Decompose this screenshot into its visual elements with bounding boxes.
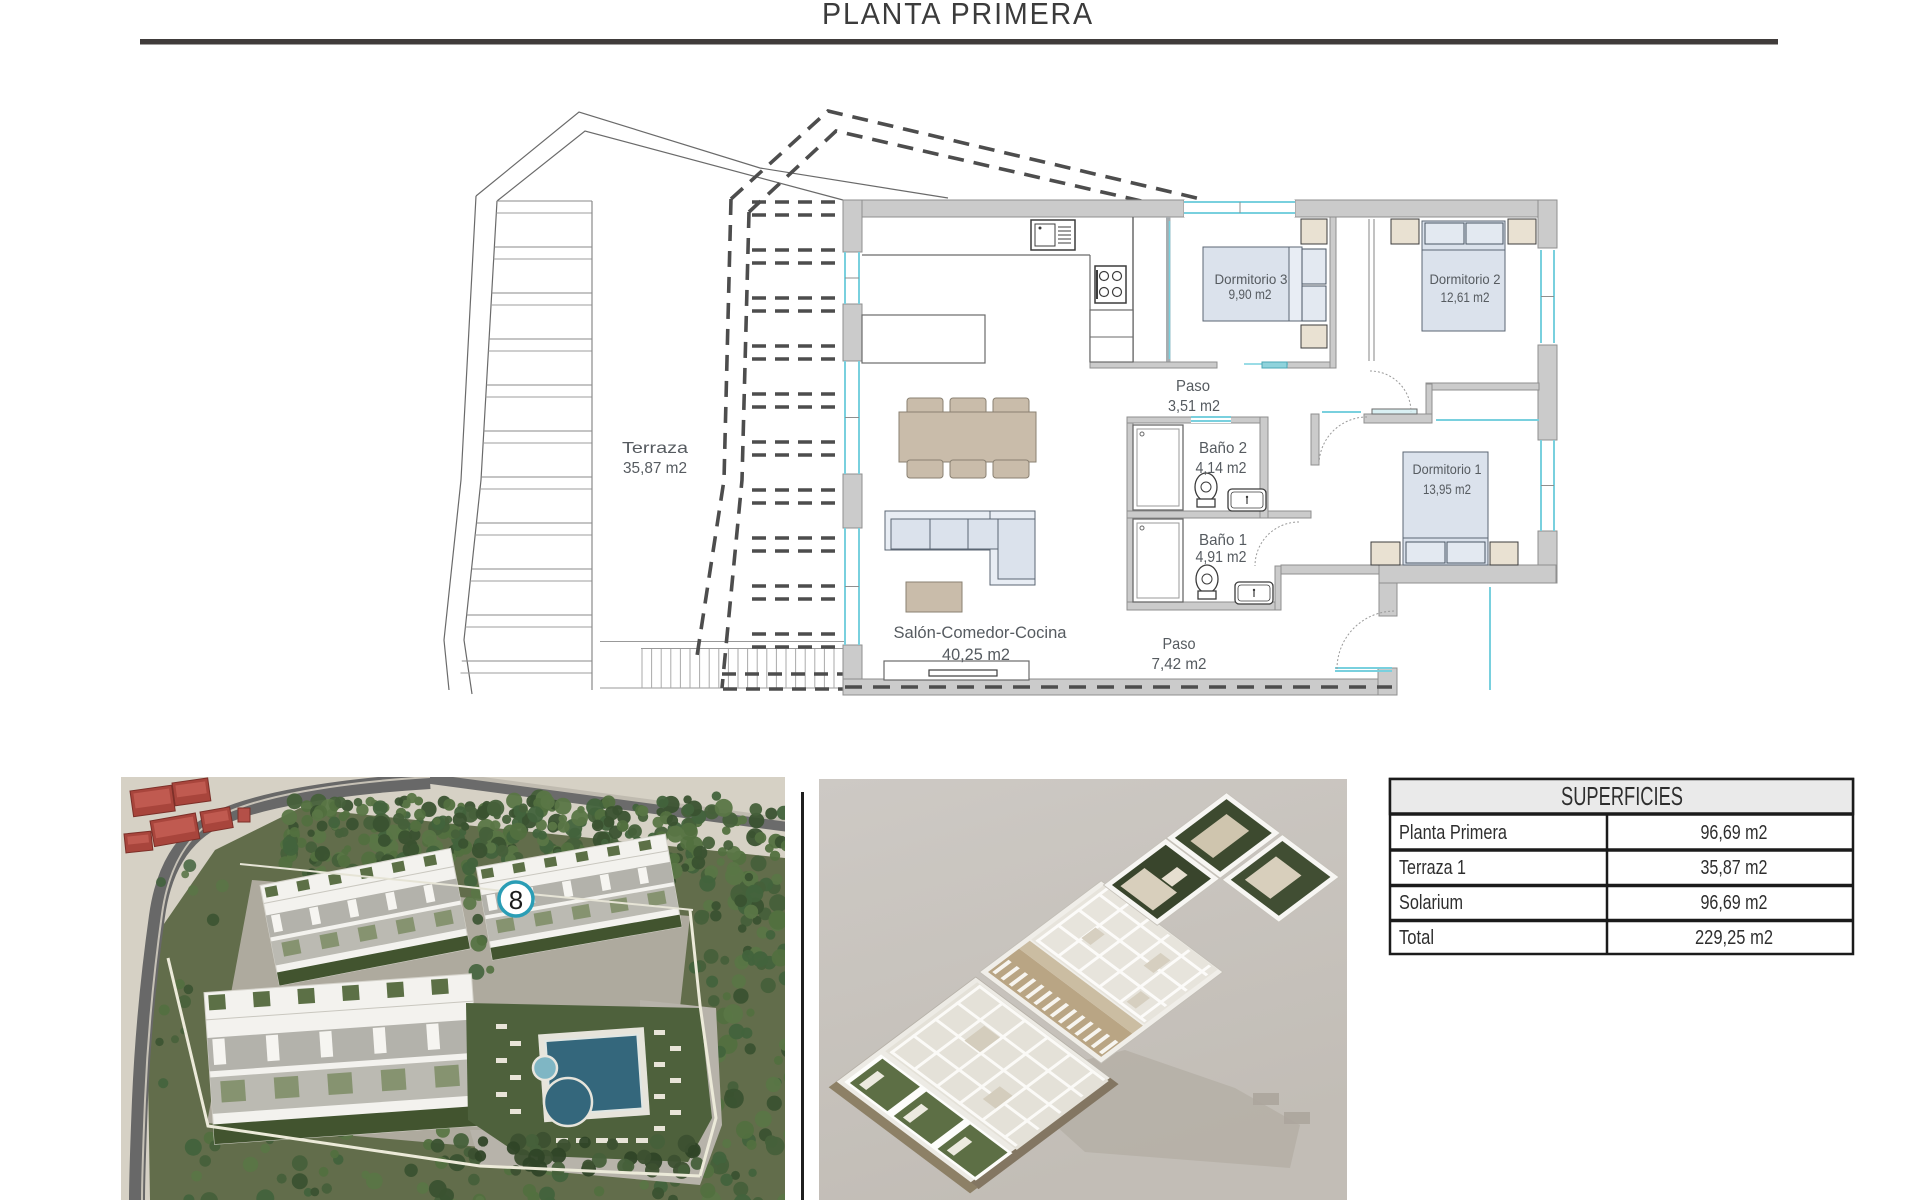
- svg-text:4,91 m2: 4,91 m2: [1196, 549, 1247, 566]
- svg-text:Paso: Paso: [1176, 378, 1210, 395]
- svg-text:9,90 m2: 9,90 m2: [1229, 286, 1272, 302]
- svg-text:96,69 m2: 96,69 m2: [1701, 822, 1768, 844]
- svg-text:Paso: Paso: [1163, 636, 1196, 653]
- svg-text:4,14 m2: 4,14 m2: [1196, 460, 1247, 477]
- svg-text:7,42 m2: 7,42 m2: [1152, 656, 1207, 673]
- svg-text:3,51 m2: 3,51 m2: [1168, 398, 1220, 415]
- svg-text:Dormitorio 1: Dormitorio 1: [1413, 461, 1482, 477]
- svg-text:96,69 m2: 96,69 m2: [1701, 892, 1768, 914]
- svg-text:12,61 m2: 12,61 m2: [1441, 289, 1490, 305]
- svg-text:Terraza 1: Terraza 1: [1399, 857, 1466, 879]
- svg-text:Total: Total: [1399, 927, 1434, 949]
- svg-text:229,25 m2: 229,25 m2: [1695, 927, 1773, 949]
- svg-text:Salón-Comedor-Cocina: Salón-Comedor-Cocina: [894, 623, 1068, 642]
- svg-text:35,87 m2: 35,87 m2: [1701, 857, 1768, 879]
- svg-text:PLANTA PRIMERA: PLANTA PRIMERA: [822, 0, 1094, 31]
- svg-text:40,25 m2: 40,25 m2: [942, 645, 1010, 664]
- svg-text:Planta Primera: Planta Primera: [1399, 822, 1508, 844]
- svg-text:35,87 m2: 35,87 m2: [623, 460, 687, 477]
- svg-text:Dormitorio 3: Dormitorio 3: [1215, 271, 1288, 287]
- svg-text:SUPERFICIES: SUPERFICIES: [1561, 781, 1683, 811]
- svg-text:Baño 2: Baño 2: [1199, 440, 1247, 457]
- svg-text:13,95 m2: 13,95 m2: [1423, 481, 1471, 497]
- svg-text:Dormitorio 2: Dormitorio 2: [1430, 271, 1501, 287]
- svg-text:Baño 1: Baño 1: [1199, 532, 1247, 549]
- svg-text:Terraza: Terraza: [622, 440, 688, 457]
- svg-text:8: 8: [509, 885, 523, 915]
- svg-text:Solarium: Solarium: [1399, 892, 1463, 914]
